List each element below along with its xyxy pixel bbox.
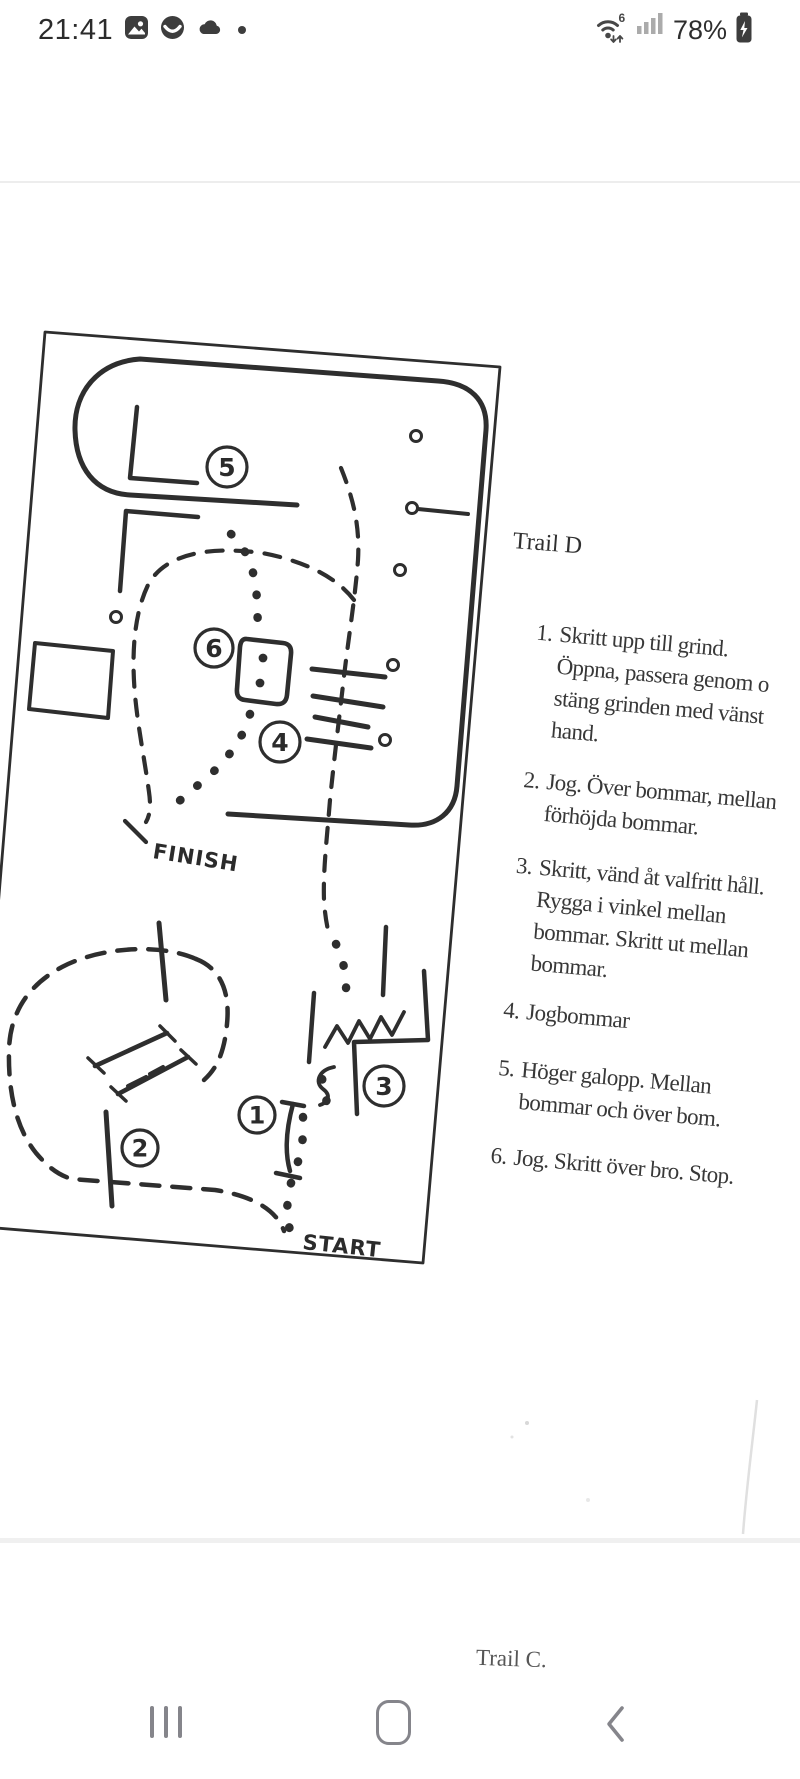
marker-6: 6 — [205, 634, 222, 663]
scanned-trail-page-photo[interactable]: 5 6 4 3 1 2 FINISH START Trail D 1. Skri… — [0, 183, 800, 1538]
fence-l2 — [120, 511, 198, 591]
recents-button[interactable] — [150, 1706, 182, 1738]
pole — [106, 1112, 112, 1206]
wifi-icon: 6 — [595, 11, 629, 50]
pole — [159, 923, 166, 1000]
marker-4: 4 — [271, 728, 288, 757]
svg-text:6: 6 — [618, 11, 625, 25]
cloud-icon — [196, 15, 223, 45]
post-rings — [111, 431, 422, 746]
battery-percent: 78% — [673, 15, 727, 46]
instruction-item-5: 5. Höger galopp. Mellan bommar och över … — [486, 1051, 790, 1141]
marker-3: 3 — [375, 1072, 392, 1101]
page-divider — [0, 1538, 800, 1543]
page-title: Trail D — [512, 528, 583, 560]
fence-l1 — [130, 407, 197, 483]
square-obstacle — [29, 643, 113, 718]
marker-1: 1 — [249, 1102, 266, 1130]
instruction-item-3: 3. Skritt, vänd åt valfritt håll. Rygga … — [498, 849, 800, 1003]
dashed-course-path — [134, 468, 359, 938]
start-label: START — [301, 1230, 382, 1262]
battery-charging-icon — [734, 11, 754, 49]
instruction-item-1: 1. Skritt upp till grind. Öppna, passera… — [519, 616, 800, 770]
page-edge-line — [743, 1400, 757, 1534]
status-bar[interactable]: 21:41 6 — [0, 0, 800, 60]
instruction-list: 1. Skritt upp till grind. Öppna, passera… — [481, 616, 800, 1197]
next-page-title: Trail C. — [476, 1645, 548, 1673]
marker-5: 5 — [218, 453, 235, 482]
clock: 21:41 — [38, 14, 113, 47]
smiley-icon — [160, 15, 185, 45]
phone-screen: 21:41 6 — [0, 0, 800, 1779]
bridge-obstacle — [237, 639, 291, 704]
instruction-item-2: 2. Jog. Över bommar, mellan förhöjda bom… — [512, 763, 800, 853]
jog-poles — [307, 669, 385, 748]
marker-2: 2 — [132, 1135, 149, 1163]
instruction-item-4: 4. Jogbommar — [494, 994, 796, 1052]
navigation-bar — [0, 1689, 800, 1779]
finish-label: FINISH — [151, 839, 240, 876]
back-button[interactable] — [606, 1705, 626, 1748]
dashed-course-path — [9, 949, 284, 1231]
home-button[interactable] — [376, 1700, 411, 1745]
gallery-icon — [124, 15, 149, 45]
more-notifications-dot — [238, 26, 246, 34]
fence-line — [418, 509, 468, 514]
signal-bars-icon — [636, 12, 666, 49]
